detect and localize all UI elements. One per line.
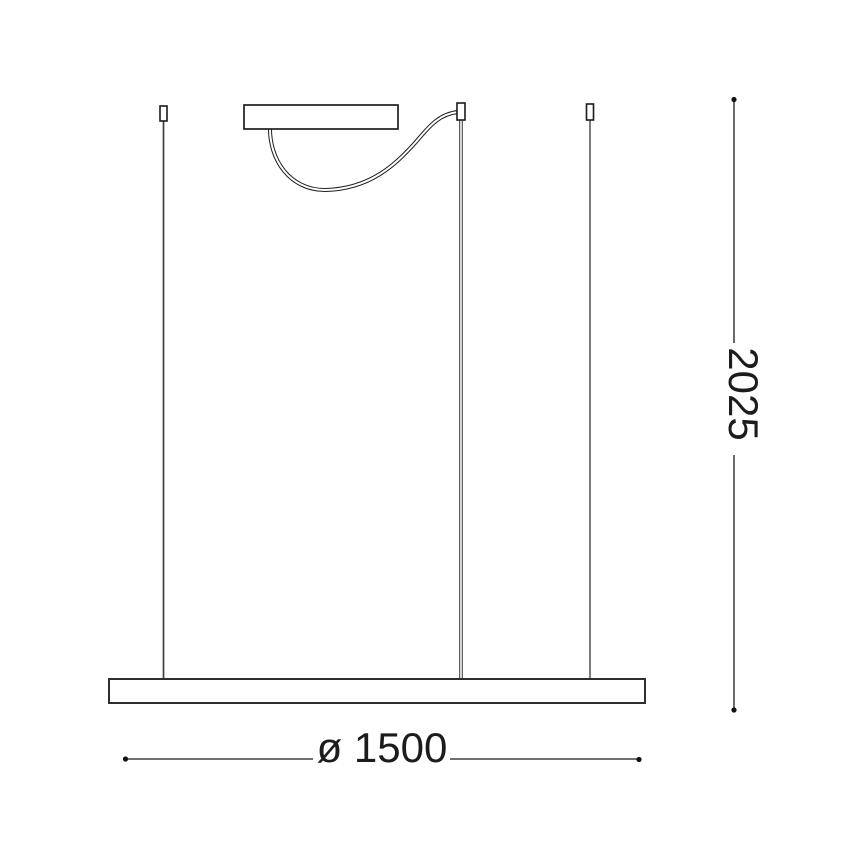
lamp-ring-profile <box>109 679 645 703</box>
ceiling-canopy <box>244 105 398 129</box>
dimension-end-dot-bottom <box>731 707 736 712</box>
height-dimension-label: 2025 <box>720 347 767 440</box>
wire-cap-middle <box>457 103 465 120</box>
dimension-end-dot-left <box>123 756 128 761</box>
wire-cap-right <box>587 104 594 120</box>
wire-cap-left <box>160 106 167 121</box>
dimension-drawing-canvas: 2025 ø 1500 <box>0 0 868 868</box>
diameter-dimension-label: ø 1500 <box>317 724 448 771</box>
dimension-end-dot-top <box>731 97 736 102</box>
pendant-lamp-dimension-diagram: 2025 ø 1500 <box>0 0 868 868</box>
dimension-end-dot-right <box>636 757 641 762</box>
